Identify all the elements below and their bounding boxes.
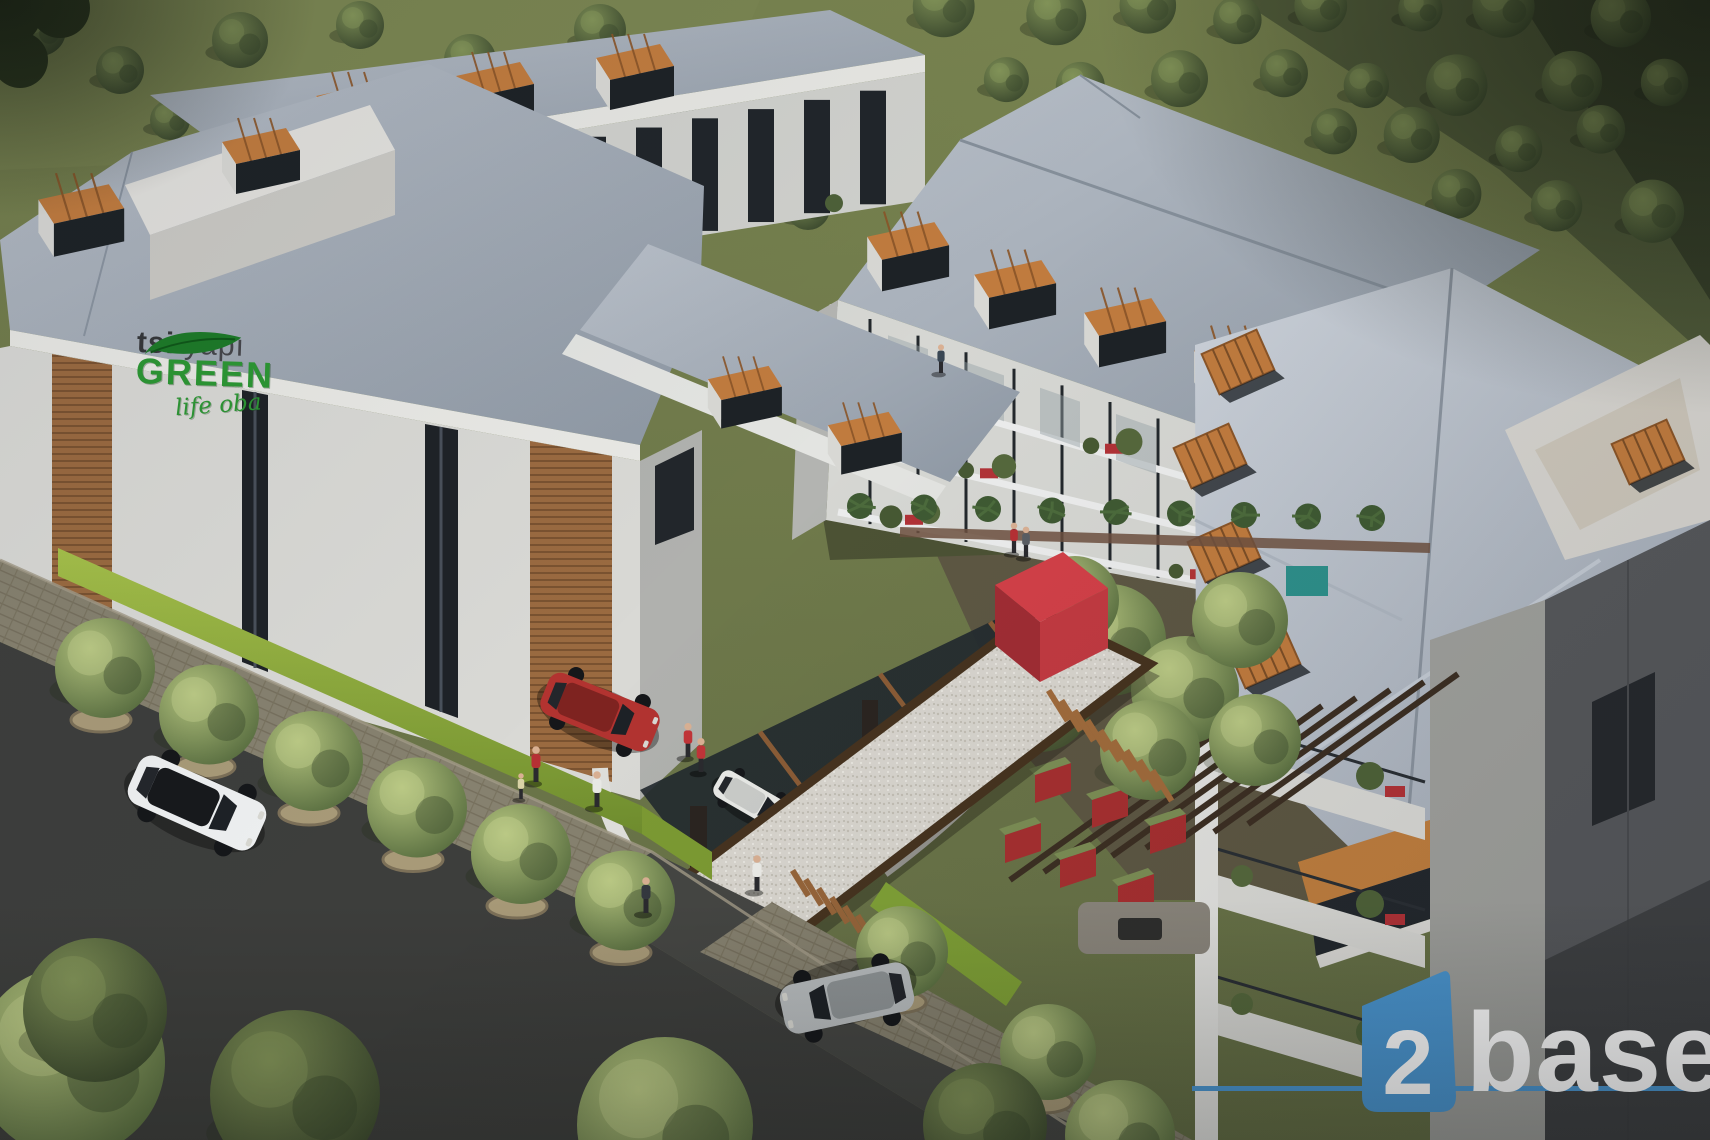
architectural-rendering: tsi yapı GREEN life oba 2 base [0, 0, 1710, 1140]
leaf-shape [145, 330, 242, 358]
developer-sign: tsi yapı GREEN life oba [135, 326, 368, 418]
2base-logo: 2 base [1180, 960, 1710, 1140]
coffee-table [1118, 918, 1162, 940]
teal-planter [1286, 566, 1328, 596]
logo-word: base [1466, 988, 1710, 1117]
logo-number: 2 [1382, 1012, 1433, 1114]
